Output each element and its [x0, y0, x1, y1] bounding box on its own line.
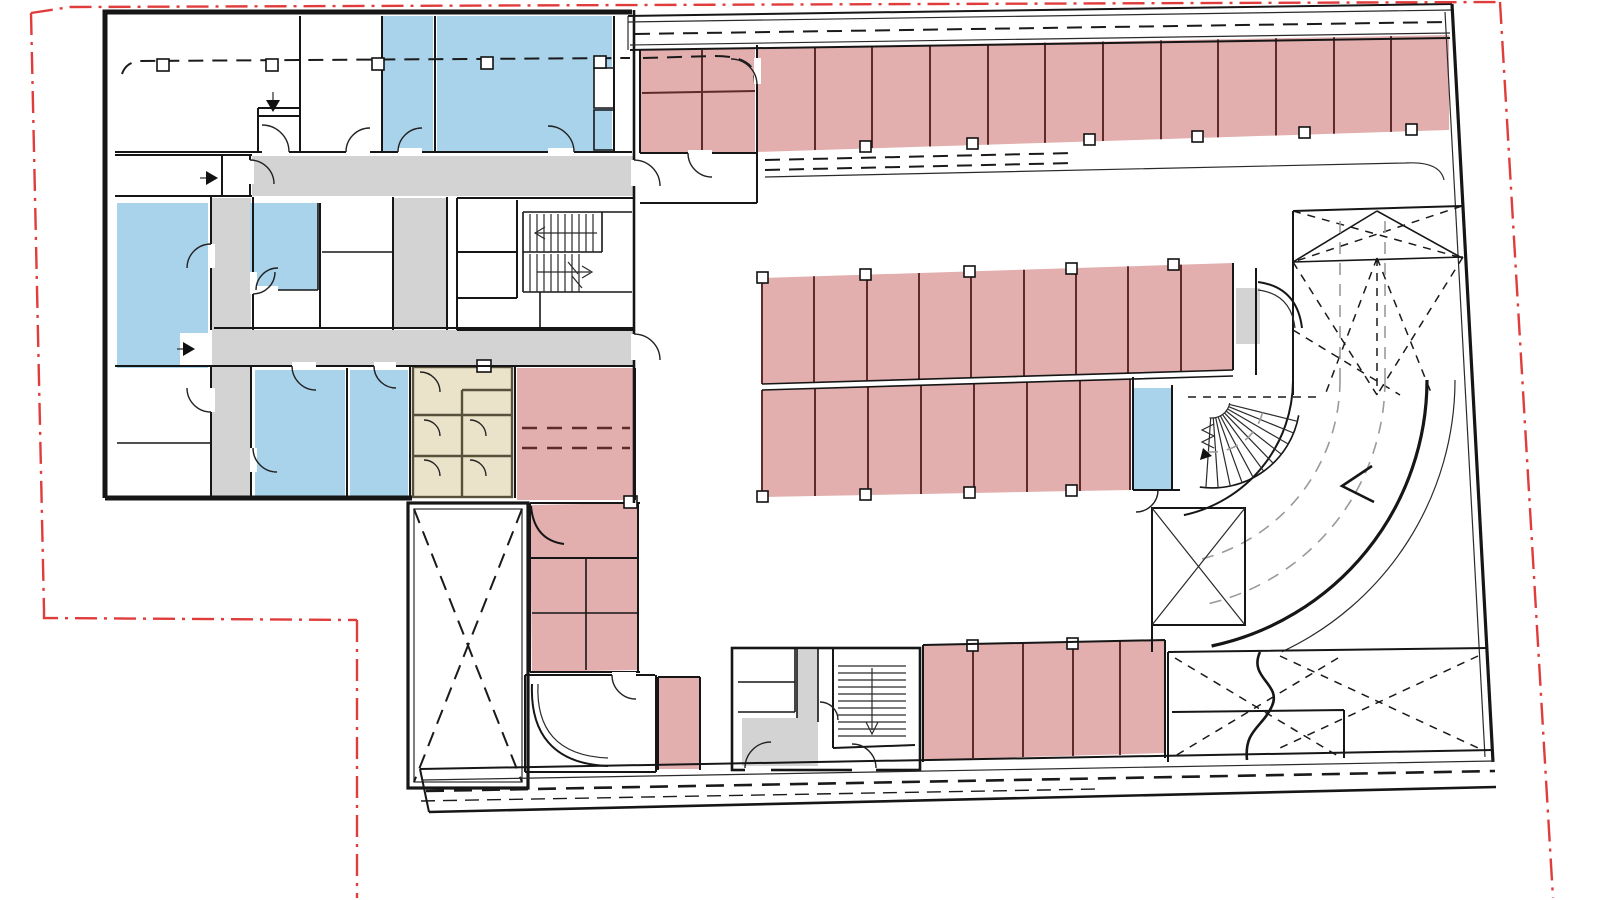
floor-plan-drawing [0, 0, 1600, 900]
wall-niche [594, 68, 614, 108]
floor-plan-canvas [0, 0, 1600, 900]
